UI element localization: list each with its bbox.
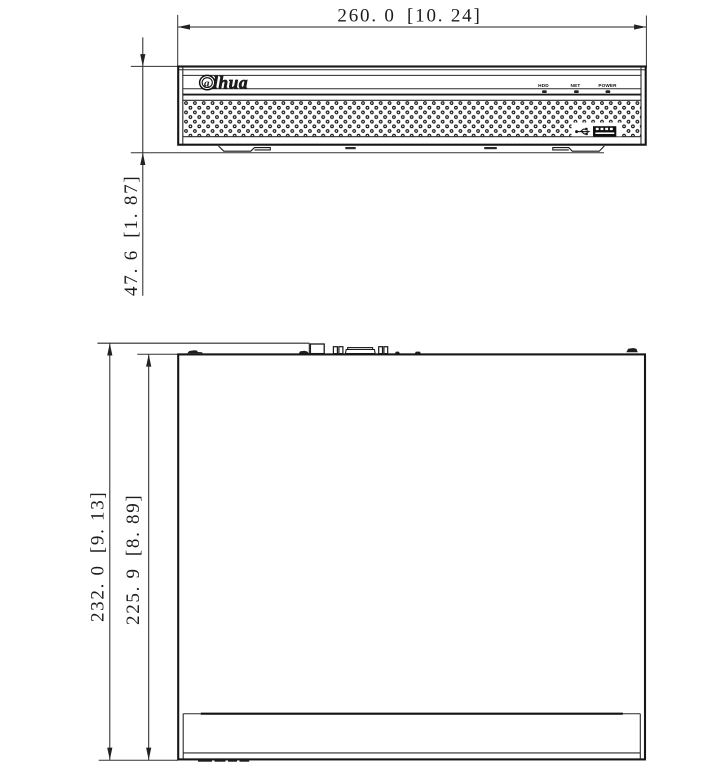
svg-text:232. 0 [9. 13]: 232. 0 [9. 13]: [88, 491, 109, 622]
svg-text:225. 9 [8. 89]: 225. 9 [8. 89]: [123, 494, 144, 625]
svg-text:NET: NET: [571, 83, 581, 88]
svg-text:47. 6 [1. 87]: 47. 6 [1. 87]: [121, 174, 142, 296]
svg-text:HDD: HDD: [538, 83, 549, 88]
svg-text:POWER: POWER: [598, 83, 617, 88]
svg-text:260. 0 [10. 24]: 260. 0 [10. 24]: [337, 5, 481, 26]
svg-text:a: a: [204, 78, 210, 90]
svg-text:lhua: lhua: [213, 73, 248, 93]
